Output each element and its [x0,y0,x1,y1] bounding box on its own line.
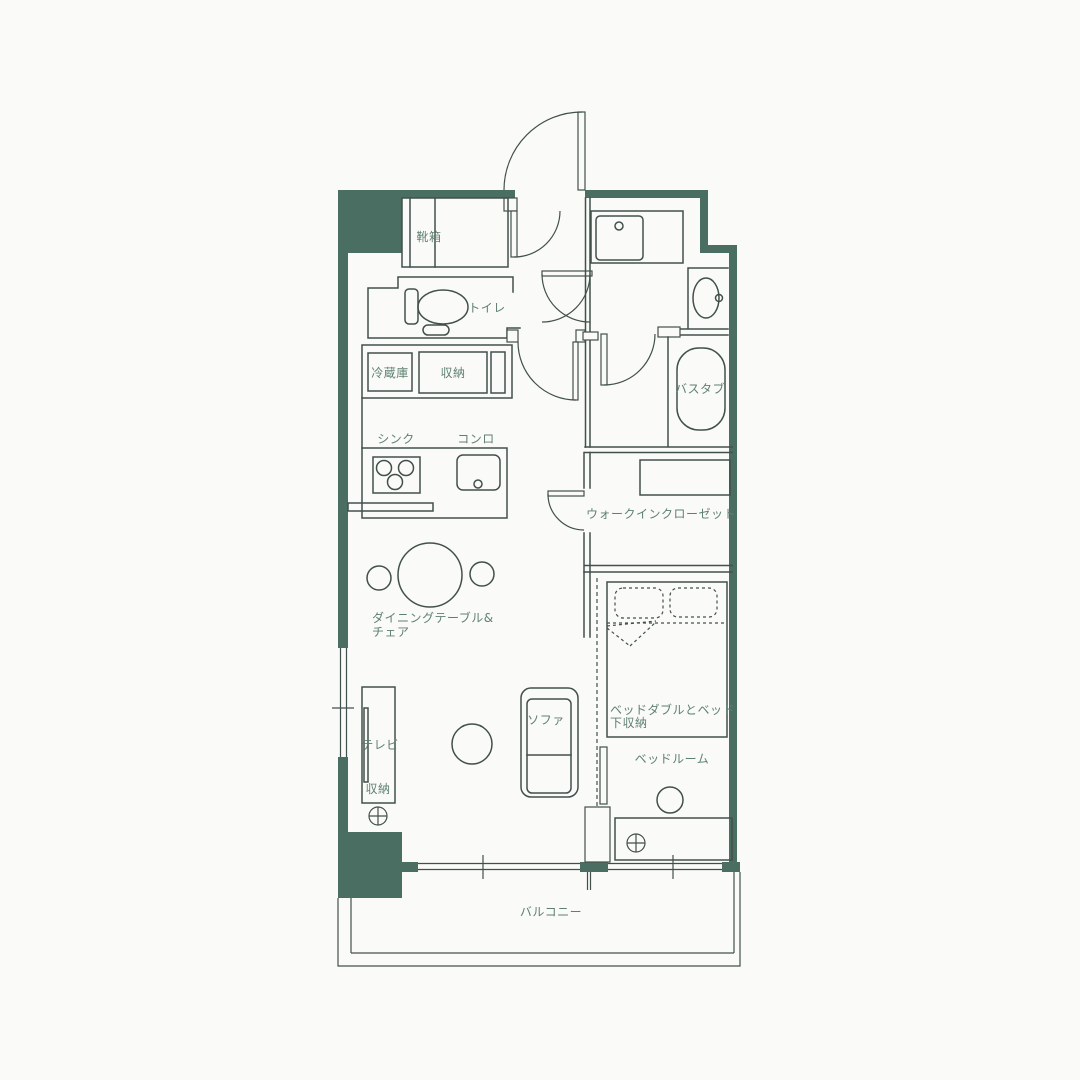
dining-chair-right [470,562,494,586]
living-room [362,687,578,825]
label-stove: コンロ [457,432,495,446]
kitchen-counter [362,448,507,518]
pillar [585,807,610,862]
toilet-door-panel [542,271,592,276]
toilet-door-swing-arc [542,274,590,322]
floor-plan: 靴箱 トイレ 冷蔵庫 収納 シンク コンロ バスタブ ウォークインクローゼット … [0,0,1080,1080]
label-bed-line2: 下収納 [610,716,648,730]
kitchen-counter-lip [348,503,433,511]
wall-top-left [338,190,515,198]
bathroom-door-panel [601,334,607,385]
label-refrigerator: 冷蔵庫 [371,366,409,380]
sliding-door-panel [600,747,607,804]
bedroom-stool [657,787,683,813]
wall-left-upper [338,198,348,648]
stove-burners [373,457,420,493]
wic-door-swing-arc [548,494,584,530]
bedroom-cabinet [615,818,732,860]
bathroom-door-swing-arc [604,334,655,385]
wall-right [729,245,737,872]
vanity-faucet [615,222,623,230]
hall-door-swing-arc [514,211,560,257]
label-sofa: ソファ [527,713,565,727]
corridor-stub-left [507,330,518,342]
wall-bottom-pier-b [580,862,608,872]
bedroom [584,572,732,862]
label-toilet: トイレ [468,301,506,315]
hall-door-panel [511,211,517,257]
ldk-door-panel [573,342,578,400]
dining-chair-left [367,566,391,590]
wall-bottom-left-block [338,832,402,898]
balcony-divider [588,872,591,890]
wic-shelf [640,460,730,495]
label-bathtub: バスタブ [675,381,725,396]
wall-bottom-pier-c [722,862,740,872]
window-living [418,855,580,879]
wall-top-right [585,190,708,198]
kitchen-sink [457,455,500,490]
washroom-door-swing-arc [542,274,590,322]
vanity-counter [591,211,683,263]
blanket-fold [607,621,656,646]
dining-table [398,543,462,607]
label-dining-line2: チェア [372,625,410,639]
pillow-right [670,588,717,617]
wall-topright-vert [700,190,708,253]
label-sink: シンク [377,432,415,446]
label-tv: テレビ [361,738,399,752]
wic-door-panel [548,491,584,496]
entry-door-swing-arc [504,112,582,190]
ldk-door-swing-arc [518,342,576,400]
bathroom-wall-stub-left [583,332,598,340]
toilet-fixture [405,289,468,335]
dining-set [367,543,494,607]
hall-wall-stub [504,198,517,211]
label-dining-line1: ダイニングテーブル& [372,610,494,625]
sofa-fixture [521,688,578,797]
wall-left-lower [338,757,348,832]
label-bed-line1: ベッドダブルとベッド [610,702,735,717]
wall-bottom-pier-a [402,862,418,872]
entry [504,112,585,257]
window-left [332,648,354,757]
label-shoe-cabinet: 靴箱 [416,229,441,244]
label-balcony: バルコニー [520,905,582,919]
label-walk-in-closet: ウォークインクローゼット [586,507,736,521]
label-kitchen-storage: 収納 [440,366,465,380]
label-tv-storage: 収納 [365,782,390,796]
window-bedroom [608,855,722,879]
kitchen-narrow-box [491,352,505,393]
bedroom-wall [584,572,590,637]
entry-door-panel [578,112,585,190]
side-table [452,724,492,764]
label-bedroom: ベッドルーム [635,752,710,766]
corridor-walls [507,198,590,447]
bathroom-wall-stub-right [658,327,680,337]
outlet-symbol-living [369,807,387,825]
outlet-symbol-bedroom [627,834,645,852]
pillow-left [615,588,663,618]
